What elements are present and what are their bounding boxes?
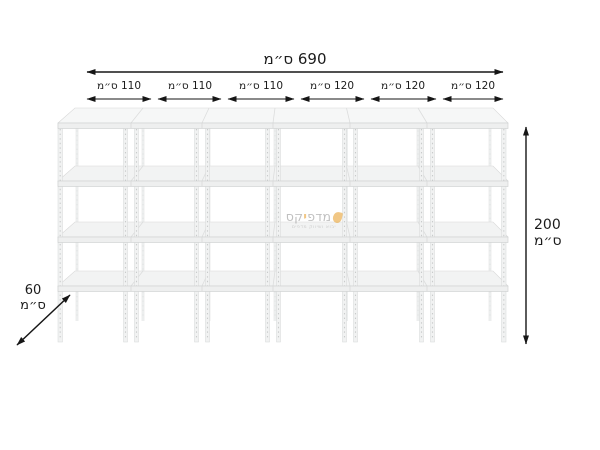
segment-width-label-4: 120 ס״מ [297,80,367,92]
height-value: 200 [534,217,562,233]
depth-unit: ס״מ [11,298,55,313]
product-dimension-diagram: 690 ס״מ 110 ס״מ 110 ס״מ 110 ס״מ 120 ס״מ … [0,0,600,450]
depth-label: 60 ס״מ [11,283,55,314]
height-label: 200 ס״מ [534,217,562,249]
total-width-label: 690 ס״מ [180,50,410,68]
shelf-surface [58,108,508,123]
segment-width-label-2: 110 ס״מ [155,80,225,92]
segment-width-label-3: 110 ס״מ [226,80,296,92]
segment-width-label-6: 120 ס״מ [438,80,508,92]
depth-value: 60 [11,283,55,298]
segment-width-label-1: 110 ס״מ [84,80,154,92]
segment-width-label-5: 120 ס״מ [368,80,438,92]
height-unit: ס״מ [534,233,562,249]
